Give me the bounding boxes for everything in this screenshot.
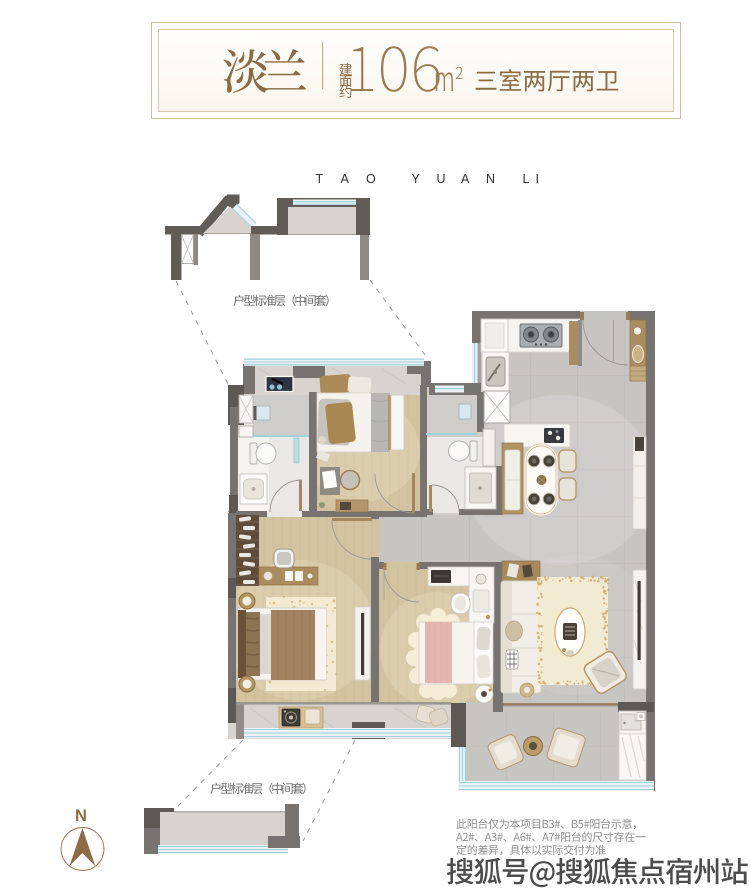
svg-text:A: A <box>341 172 350 186</box>
svg-text:Y: Y <box>412 172 421 186</box>
svg-text:U: U <box>437 172 446 186</box>
svg-text:O: O <box>366 172 376 186</box>
svg-text:L: L <box>523 172 530 186</box>
svg-text:N: N <box>486 172 495 186</box>
svg-text:I: I <box>536 172 539 186</box>
svg-text:A: A <box>461 172 470 186</box>
svg-text:N: N <box>75 807 87 825</box>
svg-text:T: T <box>316 172 324 186</box>
